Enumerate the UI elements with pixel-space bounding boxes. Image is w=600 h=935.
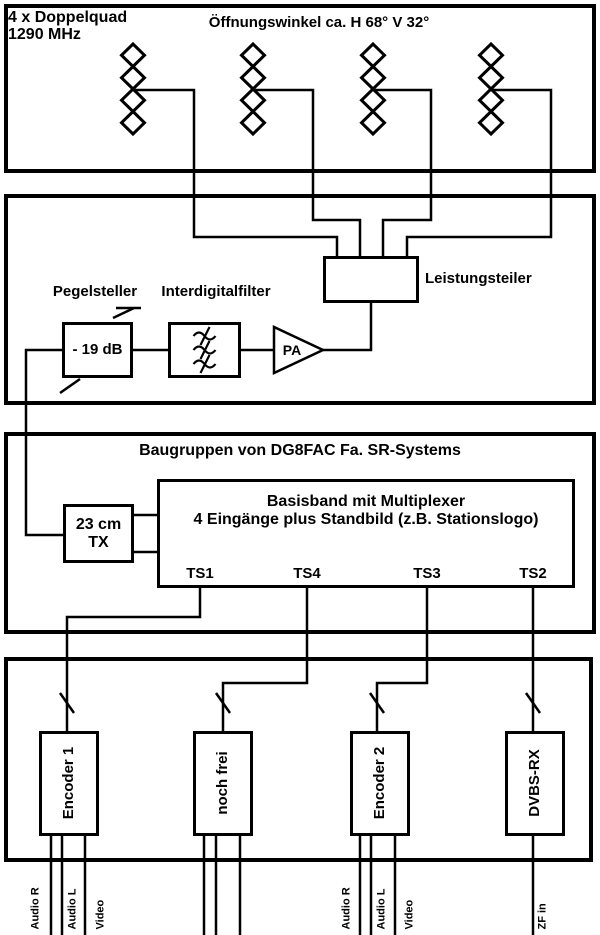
attenuator-value-text: - 19 dB (72, 342, 122, 359)
power-divider-label: Leistungsteiler (425, 271, 532, 288)
antenna-name-line2: 1290 MHz (8, 26, 81, 44)
antenna-name-line1: 4 x Doppelquad (8, 9, 127, 27)
diagram-canvas: - 19 dB 23 cm TX 4 x Doppelquad 1290 MHz… (0, 0, 600, 935)
power-divider-box (323, 256, 419, 303)
encoder1-audio-l-label: Audio L (67, 870, 80, 930)
attenuator-label: Pegelsteller (35, 284, 155, 301)
port-ts3: TS3 (402, 566, 452, 583)
nochfrei-label: noch frei (213, 728, 233, 838)
baseband-title: Baugruppen von DG8FAC Fa. SR-Systems (100, 442, 500, 460)
encoder1-audio-r-label: Audio R (30, 870, 43, 930)
encoder1-label: Encoder 1 (59, 728, 79, 838)
multiplexer-line1: Basisband mit Multiplexer (157, 493, 575, 511)
amplifier-label: PA (275, 343, 309, 358)
multiplexer-line2: 4 Eingänge plus Standbild (z.B. Stations… (157, 511, 575, 529)
port-ts4: TS4 (282, 566, 332, 583)
tx-label-line2: TX (88, 534, 108, 552)
beamwidth-note: Öffnungswinkel ca. H 68° V 32° (169, 15, 469, 32)
attenuator-value: - 19 dB (62, 322, 133, 378)
encoder2-audio-r-label: Audio R (341, 870, 354, 930)
encoder2-audio-l-label: Audio L (376, 870, 389, 930)
dvbs-label: DVBS-RX (525, 728, 545, 838)
encoder1-video-label: Video (95, 870, 108, 930)
tx-label-line1: 23 cm (76, 516, 121, 534)
encoder2-video-label: Video (404, 870, 417, 930)
encoder2-label: Encoder 2 (370, 728, 390, 838)
port-ts2: TS2 (508, 566, 558, 583)
filter-label: Interdigitalfilter (156, 284, 276, 301)
port-ts1: TS1 (175, 566, 225, 583)
tx-box-label: 23 cm TX (63, 504, 134, 563)
dvbs-zf-in-label: ZF in (537, 870, 550, 930)
filter-icon (175, 324, 235, 376)
